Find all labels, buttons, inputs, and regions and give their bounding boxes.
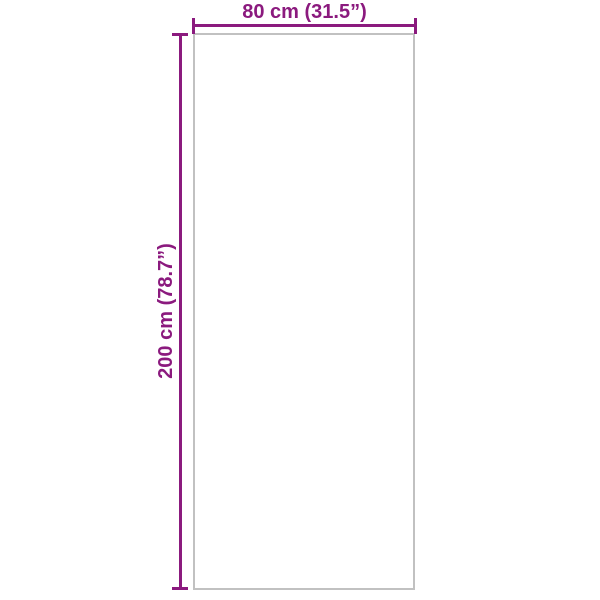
height-dimension-label: 200 cm (78.7”)	[156, 243, 176, 379]
product-outline	[193, 33, 415, 590]
width-dimension-tick-right	[414, 18, 417, 34]
height-dimension-tick-top	[172, 33, 188, 36]
width-dimension-label: 80 cm (31.5”)	[192, 0, 417, 22]
height-dimension-tick-bottom	[172, 587, 188, 590]
width-dimension-line	[192, 24, 417, 27]
width-dimension-tick-left	[192, 18, 195, 34]
dimension-diagram: 80 cm (31.5”) 200 cm (78.7”)	[0, 0, 600, 600]
height-dimension-line	[179, 33, 182, 590]
